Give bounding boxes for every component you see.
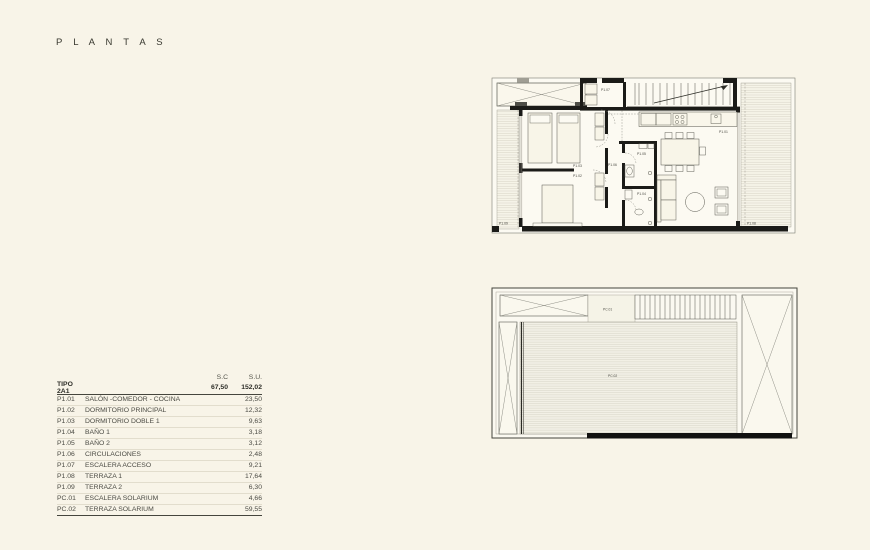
- room-label: P1.02: [573, 174, 582, 178]
- row-name: BAÑO 2: [85, 441, 188, 448]
- row-name: CIRCULACIONES: [85, 452, 188, 459]
- table-row: PC.01 ESCALERA SOLARIUM 4,66: [57, 494, 262, 505]
- room-label: P1.07: [601, 88, 610, 92]
- crossed-beam-box: [497, 83, 587, 106]
- row-su: 3,18: [228, 430, 262, 437]
- row-name: DORMITORIO DOBLE 1: [85, 419, 188, 426]
- table-row: P1.08 TERRAZA 1 17,64: [57, 472, 262, 483]
- row-code: P1.09: [57, 485, 85, 492]
- row-code: PC.02: [57, 507, 85, 514]
- row-su: 59,55: [228, 507, 262, 514]
- row-code: P1.04: [57, 430, 85, 437]
- crossed-panel-left: [499, 322, 517, 434]
- terrace-1-area: P1.08: [741, 83, 791, 227]
- row-su: 23,50: [228, 397, 262, 404]
- row-su: 2,48: [228, 452, 262, 459]
- crossed-beam-box: [500, 295, 588, 316]
- row-name: TERRAZA SOLARIUM: [85, 507, 188, 514]
- room-label: P1.09: [499, 222, 508, 226]
- room-label: P1.03: [573, 164, 582, 168]
- type-su-value: 152,02: [228, 385, 262, 392]
- type-code: TIPO 2A1: [57, 382, 85, 396]
- row-code: P1.06: [57, 452, 85, 459]
- row-code: PC.01: [57, 496, 85, 503]
- table-row: P1.07 ESCALERA ACCESO 9,21: [57, 461, 262, 472]
- row-su: 4,66: [228, 496, 262, 503]
- solarium-staircase: [635, 295, 736, 319]
- walls: [587, 433, 792, 439]
- room-label: P1.05: [637, 152, 646, 156]
- row-name: BAÑO 1: [85, 430, 188, 437]
- room-label: P1.08: [747, 222, 756, 226]
- room-label: P1.06: [608, 163, 617, 167]
- row-code: P1.03: [57, 419, 85, 426]
- solarium-deck: PC.02: [520, 322, 737, 434]
- row-su: 17,64: [228, 474, 262, 481]
- row-su: 6,30: [228, 485, 262, 492]
- solarium-stair-head: PC.01: [588, 295, 635, 323]
- plantas-sheet: { "page": { "title": "P L A N T A S" }, …: [0, 0, 870, 550]
- col-header-su: S.U.: [228, 375, 262, 382]
- table-row: P1.09 TERRAZA 2 6,30: [57, 483, 262, 494]
- type-sc-value: 67,50: [188, 385, 228, 392]
- col-header-sc: S.C: [188, 375, 228, 382]
- row-su: 9,63: [228, 419, 262, 426]
- row-name: SALÓN -COMEDOR - COCINA: [85, 397, 188, 404]
- row-su: 3,12: [228, 441, 262, 448]
- row-su: 9,21: [228, 463, 262, 470]
- table-row: P1.02 DORMITORIO PRINCIPAL 12,32: [57, 406, 262, 417]
- row-code: P1.08: [57, 474, 85, 481]
- table-row: P1.03 DORMITORIO DOBLE 1 9,63: [57, 417, 262, 428]
- row-code: P1.02: [57, 408, 85, 415]
- solarium-plan: PC.01 PC.02: [490, 286, 800, 441]
- row-name: ESCALERA ACCESO: [85, 463, 188, 470]
- table-header-row: S.C S.U.: [57, 374, 262, 383]
- row-name: DORMITORIO PRINCIPAL: [85, 408, 188, 415]
- table-row: PC.02 TERRAZA SOLARIUM 59,55: [57, 505, 262, 516]
- area-table: S.C S.U. TIPO 2A1 67,50 152,02 P1.01 SAL…: [57, 374, 262, 516]
- first-floor-plan: P1.09 P1.08: [489, 77, 799, 237]
- crossed-panel-right: [742, 295, 792, 434]
- room-label: P1.04: [637, 192, 646, 196]
- page-title: P L A N T A S: [56, 37, 167, 48]
- table-row: P1.04 BAÑO 1 3,18: [57, 428, 262, 439]
- row-code: P1.01: [57, 397, 85, 404]
- row-name: ESCALERA SOLARIUM: [85, 496, 188, 503]
- row-code: P1.05: [57, 441, 85, 448]
- type-total-row: TIPO 2A1 67,50 152,02: [57, 383, 262, 395]
- row-su: 12,32: [228, 408, 262, 415]
- room-label: P1.01: [719, 130, 728, 134]
- table-row: P1.06 CIRCULACIONES 2,48: [57, 450, 262, 461]
- row-name: TERRAZA 2: [85, 485, 188, 492]
- row-name: TERRAZA 1: [85, 474, 188, 481]
- table-row: P1.01 SALÓN -COMEDOR - COCINA 23,50: [57, 395, 262, 406]
- room-label: PC.02: [608, 374, 617, 378]
- room-label: PC.01: [603, 308, 612, 312]
- table-row: P1.05 BAÑO 2 3,12: [57, 439, 262, 450]
- row-code: P1.07: [57, 463, 85, 470]
